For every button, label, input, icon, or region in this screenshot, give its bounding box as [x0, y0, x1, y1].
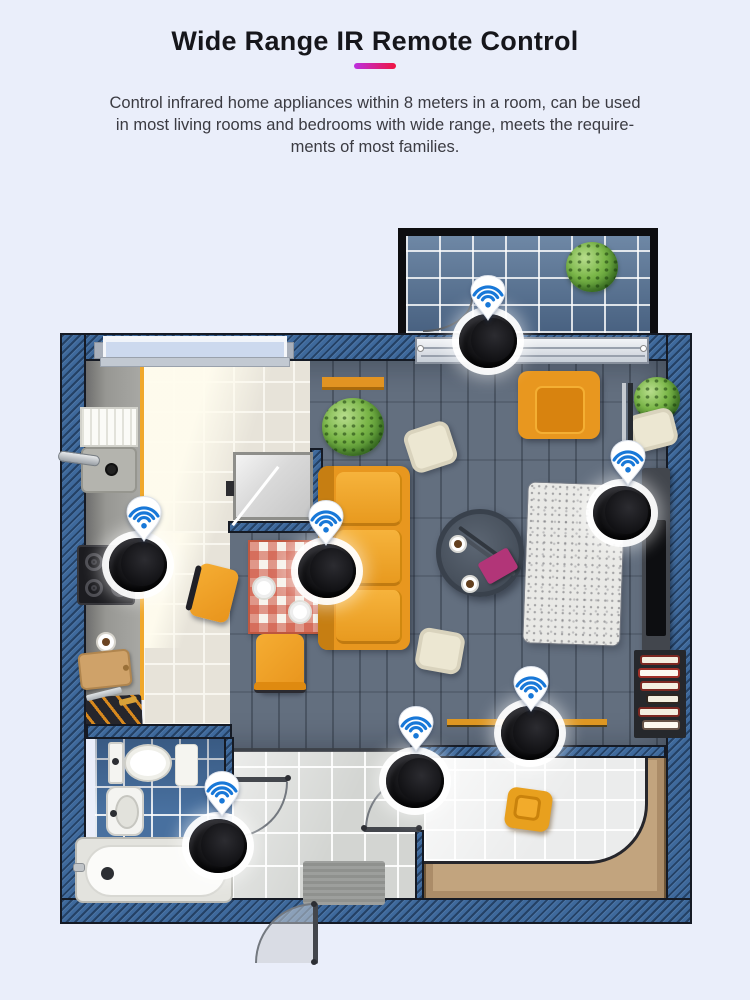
- bidet-faucet: [110, 810, 117, 817]
- door-hinge: [416, 825, 422, 831]
- doormat: [303, 861, 385, 905]
- sofa-cushion: [336, 472, 402, 526]
- sink-drain: [105, 463, 118, 476]
- armchair: [518, 371, 600, 439]
- door-hinge: [311, 901, 317, 907]
- coffee-table: [436, 509, 524, 597]
- cutting-board: [77, 648, 133, 690]
- tv-screen: [646, 520, 666, 636]
- sofa: [318, 466, 410, 650]
- plate: [288, 600, 312, 624]
- bench: [447, 719, 607, 727]
- board-hole: [123, 665, 130, 672]
- sill-line: [421, 355, 645, 357]
- dining-chair: [256, 634, 304, 692]
- window-apron: [100, 357, 290, 367]
- entry-door: [313, 903, 318, 964]
- hallway-bedroom-wall: [415, 830, 424, 902]
- accent-underline: [354, 63, 396, 69]
- tub-drain: [101, 867, 114, 880]
- sill-line: [421, 347, 645, 349]
- balcony-door-sill: [415, 337, 649, 364]
- book: [638, 707, 680, 717]
- panel-glare: [232, 466, 280, 526]
- stove-cooktop: [77, 545, 135, 605]
- bathroom-door: [228, 777, 288, 782]
- rug: [523, 482, 625, 645]
- plate: [252, 576, 276, 600]
- door-hinge: [285, 775, 291, 781]
- book: [640, 655, 680, 665]
- bedroom-cushion: [503, 786, 553, 833]
- description-line: ments of most families.: [0, 136, 750, 158]
- floor-cushion: [414, 626, 467, 675]
- dining-table: [248, 540, 322, 634]
- book: [640, 681, 680, 691]
- burner: [111, 579, 129, 597]
- sofa-back: [318, 466, 334, 650]
- bath-mat: [175, 744, 198, 786]
- counter-edge-strip: [140, 361, 144, 700]
- bathroom-right-wall: [224, 737, 234, 777]
- coffee-cup: [449, 535, 467, 553]
- wall-shelf: [322, 377, 384, 390]
- hallway-door: [363, 827, 421, 832]
- balcony-plant: [566, 242, 618, 292]
- floor-threshold: [232, 748, 412, 752]
- book: [638, 668, 680, 678]
- curtain-rod: [622, 383, 626, 480]
- bathtub: [75, 837, 233, 903]
- door-hinge: [226, 775, 232, 781]
- chair-back: [254, 682, 306, 693]
- door-hinge: [311, 959, 317, 965]
- description-line: in most living rooms and bedrooms with w…: [0, 114, 750, 136]
- coffee-cup: [461, 575, 479, 593]
- burner: [85, 553, 103, 571]
- toilet-button: [112, 758, 119, 765]
- toilet-bowl: [124, 744, 172, 782]
- cushion-inner: [513, 794, 542, 821]
- book: [646, 694, 680, 704]
- panel-tab: [226, 481, 234, 496]
- wall-panel: [233, 452, 313, 520]
- burner: [85, 579, 103, 597]
- armchair-cushion: [535, 386, 585, 434]
- sink-drainboard: [80, 407, 138, 447]
- soundbar: [628, 383, 633, 482]
- sill-end-dot: [417, 345, 424, 352]
- living-room-bottom-wall: [410, 745, 666, 758]
- description: Control infrared home appliances within …: [0, 92, 750, 158]
- sofa-cushion: [336, 590, 402, 644]
- partition-wall-horizontal: [228, 521, 319, 533]
- bidet: [106, 786, 144, 836]
- description-line: Control infrared home appliances within …: [0, 92, 750, 114]
- page-title: Wide Range IR Remote Control: [0, 26, 750, 57]
- bidet-basin: [115, 795, 139, 829]
- kitchen-floor-lower: [143, 533, 230, 725]
- book: [642, 720, 680, 730]
- sofa-cushion: [336, 530, 402, 586]
- bathroom-top-wall: [86, 724, 232, 739]
- tub-faucet: [73, 863, 85, 872]
- potted-plant: [322, 398, 384, 456]
- bookshelf: [634, 650, 686, 738]
- door-hinge: [361, 825, 367, 831]
- sill-end-dot: [640, 345, 647, 352]
- burner: [111, 553, 129, 571]
